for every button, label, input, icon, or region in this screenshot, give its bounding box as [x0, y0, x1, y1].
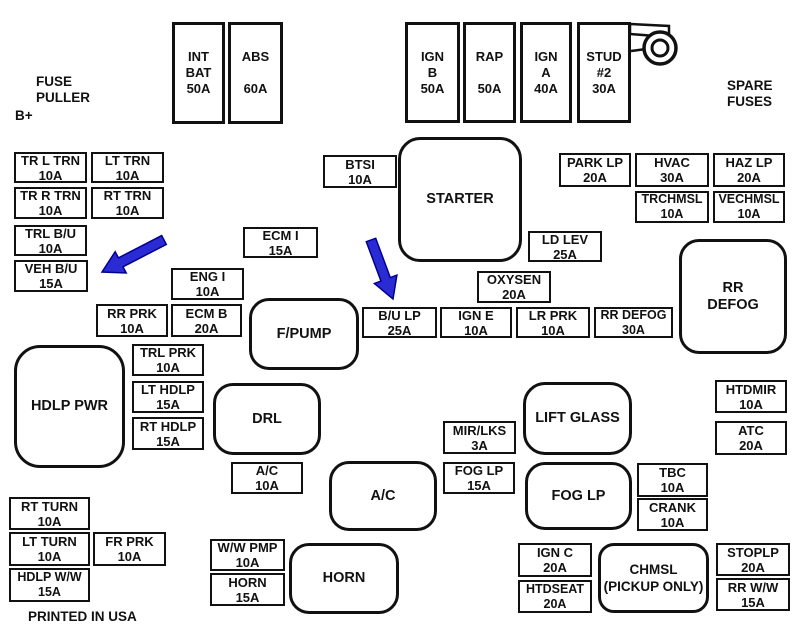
- fuse-label-line: ECM B: [186, 306, 228, 321]
- fuse-label-line: 10A: [661, 480, 685, 495]
- fuse-label-line: LD LEV: [542, 232, 588, 247]
- fuse-oxysen: OXYSEN20A: [477, 271, 551, 303]
- fuse-label-line: 10A: [38, 514, 62, 529]
- fuse-label-line: FR PRK: [105, 534, 153, 549]
- fuse-label-line: 10A: [661, 207, 684, 222]
- relay-horn: HORN: [289, 543, 399, 614]
- fuse-ign-a: IGNA40A: [520, 22, 572, 123]
- fuse-label-line: 10A: [236, 555, 260, 570]
- fuse-label-line: 20A: [737, 170, 761, 185]
- relay-label-line: RR: [723, 280, 744, 297]
- relay-lift-glass: LIFT GLASS: [523, 382, 632, 455]
- relay-label-line: HORN: [323, 570, 366, 587]
- fuse-label-line: 20A: [739, 438, 763, 453]
- fuse-htdseat: HTDSEAT20A: [518, 580, 592, 613]
- fuse-label-line: LT HDLP: [141, 382, 195, 397]
- fuse-abs: ABS 60A: [228, 22, 283, 124]
- fuse-label-line: 10A: [39, 168, 63, 183]
- fuse-label-line: 3A: [471, 438, 488, 453]
- fuse-hdlp-ww: HDLP W/W15A: [9, 568, 90, 602]
- fuse-label-line: [254, 65, 258, 81]
- fuse-label-line: 10A: [118, 549, 142, 564]
- fuse-rt-hdlp: RT HDLP15A: [132, 417, 204, 450]
- fuse-tbc: TBC10A: [637, 463, 708, 497]
- fuse-label-line: 10A: [39, 203, 63, 218]
- fuse-label-line: HORN: [228, 575, 266, 590]
- fuse-vechmsl: VECHMSL10A: [713, 191, 785, 223]
- fuse-label-line: 10A: [38, 549, 62, 564]
- text-line: PULLER: [36, 90, 90, 106]
- fuse-label-line: 30A: [592, 81, 616, 97]
- fuse-label-line: RR W/W: [728, 580, 779, 595]
- fuse-label-line: 15A: [269, 243, 293, 258]
- text-line: SPARE: [727, 78, 773, 94]
- fuse-label-line: 20A: [741, 560, 765, 575]
- fuse-label-line: FOG LP: [455, 463, 503, 478]
- relay-hdlp-pwr: HDLP PWR: [14, 345, 125, 468]
- b-plus-label: B+: [15, 108, 33, 124]
- fuse-label-line: 15A: [156, 397, 180, 412]
- fuse-label-line: RR DEFOG: [601, 308, 667, 323]
- relay-f-pump: F/PUMP: [249, 298, 359, 370]
- fuse-label-line: IGN E: [458, 308, 493, 323]
- fuse-label-line: HAZ LP: [726, 155, 773, 170]
- fuse-label-line: VEH B/U: [25, 261, 78, 276]
- fuse-label-line: 15A: [156, 434, 180, 449]
- fuse-label-line: TRL PRK: [140, 345, 196, 360]
- fuse-puller-label: FUSEPULLER: [36, 74, 90, 106]
- ring-terminal-icon: [625, 18, 687, 74]
- relay-label-line: DEFOG: [707, 297, 759, 314]
- fuse-label-line: 25A: [553, 247, 577, 262]
- fuse-bu-lp: B/U LP25A: [362, 307, 437, 338]
- fuse-rap: RAP 50A: [463, 22, 516, 123]
- fuse-fog-lp: FOG LP15A: [443, 462, 515, 494]
- fuse-label-line: 20A: [543, 560, 567, 575]
- fuse-label-line: HVAC: [654, 155, 690, 170]
- relay-drl: DRL: [213, 383, 321, 455]
- printed-in-usa-label: PRINTED IN USA: [28, 609, 137, 625]
- fuse-ecm-i: ECM I15A: [243, 227, 318, 258]
- fuse-label-line: A/C: [256, 463, 278, 478]
- fuse-label-line: 25A: [388, 323, 412, 338]
- fuse-label-line: RT TRN: [104, 188, 152, 203]
- fuse-label-line: 40A: [534, 81, 558, 97]
- relay-label-line: F/PUMP: [277, 326, 332, 343]
- fuse-label-line: 10A: [739, 397, 763, 412]
- blue-arrow-veh-bu: [102, 236, 166, 273]
- fuse-label-line: 10A: [39, 241, 63, 256]
- fuse-label-line: 10A: [255, 478, 279, 493]
- fuse-rr-prk: RR PRK10A: [96, 304, 168, 337]
- fuse-label-line: W/W PMP: [218, 540, 278, 555]
- fuse-veh-bu: VEH B/U15A: [14, 260, 88, 292]
- fuse-crank: CRANK10A: [637, 498, 708, 531]
- fuse-label-line: PARK LP: [567, 155, 623, 170]
- relay-starter: STARTER: [398, 137, 522, 262]
- fuse-rr-defog: RR DEFOG30A: [594, 307, 673, 338]
- fuse-label-line: B/U LP: [378, 308, 421, 323]
- fuse-rr-ww: RR W/W15A: [716, 578, 790, 611]
- spare-fuses-label: SPAREFUSES: [727, 78, 773, 110]
- fuse-label-line: LR PRK: [529, 308, 577, 323]
- fuse-label-line: 15A: [467, 478, 491, 493]
- relay-label-line: (PICKUP ONLY): [604, 578, 704, 595]
- fuse-lt-trn: LT TRN10A: [91, 152, 164, 183]
- fuse-tr-l-trn: TR L TRN10A: [14, 152, 87, 183]
- fuse-label-line: 10A: [661, 515, 685, 530]
- fuse-label-line: RR PRK: [107, 306, 157, 321]
- fuse-label-line: IGN C: [537, 545, 573, 560]
- fuse-label-line: 10A: [120, 321, 144, 336]
- relay-label-line: FOG LP: [552, 488, 606, 505]
- blue-arrow-bu-lp: [366, 238, 397, 299]
- fuse-label-line: ECM I: [262, 228, 298, 243]
- fuse-label-line: 10A: [464, 323, 488, 338]
- fuse-label-line: BTSI: [345, 157, 375, 172]
- fuse-label-line: TR L TRN: [21, 153, 80, 168]
- text-line: B+: [15, 108, 33, 124]
- fuse-btsi: BTSI10A: [323, 155, 397, 188]
- fuse-label-line: HTDSEAT: [526, 582, 584, 597]
- relay-fog-lp: FOG LP: [525, 462, 632, 530]
- fuse-stoplp: STOPLP20A: [716, 543, 790, 576]
- fuse-label-line: MIR/LKS: [453, 423, 506, 438]
- fuse-tr-r-trn: TR R TRN10A: [14, 187, 87, 219]
- fuse-label-line: HDLP W/W: [17, 570, 81, 585]
- fuse-ign-c: IGN C20A: [518, 543, 592, 577]
- fuse-label-line: RAP: [476, 49, 503, 65]
- fuse-trl-bu: TRL B/U10A: [14, 225, 87, 256]
- fuse-rt-turn: RT TURN10A: [9, 497, 90, 530]
- fuse-label-line: 10A: [738, 207, 761, 222]
- fuse-trchmsl: TRCHMSL10A: [635, 191, 709, 223]
- fuse-label-line: 15A: [741, 595, 765, 610]
- fuse-eng-i: ENG I10A: [171, 268, 244, 300]
- fuse-label-line: 30A: [622, 323, 645, 338]
- fuse-label-line: LT TURN: [22, 534, 77, 549]
- relay-label-line: A/C: [371, 488, 396, 505]
- fuse-atc: ATC20A: [715, 421, 787, 455]
- fuse-label-line: #2: [597, 65, 611, 81]
- relay-chmsl: CHMSL(PICKUP ONLY): [598, 543, 709, 613]
- fuse-label-line: TRCHMSL: [641, 192, 702, 207]
- fuse-label-line: 50A: [478, 81, 502, 97]
- fuse-lr-prk: LR PRK10A: [516, 307, 590, 338]
- fuse-label-line: 20A: [544, 597, 567, 612]
- fuse-ac: A/C10A: [231, 462, 303, 494]
- relay-ac: A/C: [329, 461, 437, 531]
- fuse-label-line: 15A: [39, 276, 63, 291]
- fuse-rt-trn: RT TRN10A: [91, 187, 164, 219]
- fuse-label-line: 50A: [187, 81, 211, 97]
- fuse-label-line: 10A: [116, 168, 140, 183]
- fuse-label-line: 10A: [348, 172, 372, 187]
- fuse-label-line: 20A: [195, 321, 219, 336]
- fuse-label-line: TR R TRN: [20, 188, 81, 203]
- fuse-label-line: OXYSEN: [487, 272, 541, 287]
- fuse-label-line: [488, 65, 492, 81]
- fuse-ecm-b: ECM B20A: [171, 304, 242, 337]
- fuse-label-line: 15A: [38, 585, 61, 600]
- fuse-label-line: VECHMSL: [718, 192, 779, 207]
- fuse-trl-prk: TRL PRK10A: [132, 344, 204, 376]
- fuse-label-line: 10A: [541, 323, 565, 338]
- relay-label-line: STARTER: [426, 191, 493, 208]
- relay-label-line: HDLP PWR: [31, 398, 108, 415]
- fuse-label-line: ABS: [242, 49, 269, 65]
- fuse-park-lp: PARK LP20A: [559, 153, 631, 187]
- fuse-label-line: CRANK: [649, 500, 696, 515]
- fuse-box-diagram: INTBAT50AABS 60AIGNB50ARAP 50AIGNA40ASTU…: [0, 0, 796, 627]
- relay-label-line: DRL: [252, 411, 282, 428]
- text-line: PRINTED IN USA: [28, 609, 137, 625]
- fuse-label-line: B: [428, 65, 437, 81]
- fuse-label-line: BAT: [186, 65, 212, 81]
- fuse-fr-prk: FR PRK10A: [93, 532, 166, 566]
- fuse-label-line: STOPLP: [727, 545, 779, 560]
- fuse-label-line: IGN: [534, 49, 557, 65]
- fuse-label-line: 60A: [244, 81, 268, 97]
- fuse-ww-pmp: W/W PMP10A: [210, 539, 285, 571]
- fuse-horn: HORN15A: [210, 573, 285, 606]
- fuse-stud-2: STUD#230A: [577, 22, 631, 123]
- relay-label-line: CHMSL: [630, 561, 678, 578]
- fuse-label-line: TBC: [659, 465, 686, 480]
- fuse-label-line: IGN: [421, 49, 444, 65]
- fuse-int-bat: INTBAT50A: [172, 22, 225, 124]
- text-line: FUSES: [727, 94, 773, 110]
- fuse-label-line: RT TURN: [21, 499, 78, 514]
- fuse-ign-e: IGN E10A: [440, 307, 512, 338]
- fuse-ld-lev: LD LEV25A: [528, 231, 602, 262]
- fuse-label-line: 10A: [196, 284, 220, 299]
- fuse-htdmir: HTDMIR10A: [715, 380, 787, 413]
- fuse-label-line: RT HDLP: [140, 419, 196, 434]
- fuse-label-line: 20A: [583, 170, 607, 185]
- fuse-hvac: HVAC30A: [635, 153, 709, 187]
- fuse-label-line: 20A: [502, 287, 526, 302]
- fuse-label-line: STUD: [586, 49, 621, 65]
- fuse-mir-lks: MIR/LKS3A: [443, 421, 516, 454]
- fuse-label-line: HTDMIR: [726, 382, 777, 397]
- text-line: FUSE: [36, 74, 90, 90]
- fuse-label-line: LT TRN: [105, 153, 150, 168]
- fuse-label-line: 10A: [116, 203, 140, 218]
- fuse-label-line: TRL B/U: [25, 226, 76, 241]
- fuse-label-line: 30A: [660, 170, 684, 185]
- fuse-label-line: 15A: [236, 590, 260, 605]
- fuse-label-line: A: [541, 65, 550, 81]
- fuse-label-line: ENG I: [190, 269, 225, 284]
- fuse-label-line: ATC: [738, 423, 764, 438]
- fuse-label-line: INT: [188, 49, 209, 65]
- fuse-lt-hdlp: LT HDLP15A: [132, 381, 204, 413]
- fuse-label-line: 50A: [421, 81, 445, 97]
- fuse-haz-lp: HAZ LP20A: [713, 153, 785, 187]
- fuse-ign-b: IGNB50A: [405, 22, 460, 123]
- relay-label-line: LIFT GLASS: [535, 410, 620, 427]
- relay-rr-defog: RRDEFOG: [679, 239, 787, 354]
- fuse-lt-turn: LT TURN10A: [9, 532, 90, 566]
- fuse-label-line: 10A: [156, 360, 180, 375]
